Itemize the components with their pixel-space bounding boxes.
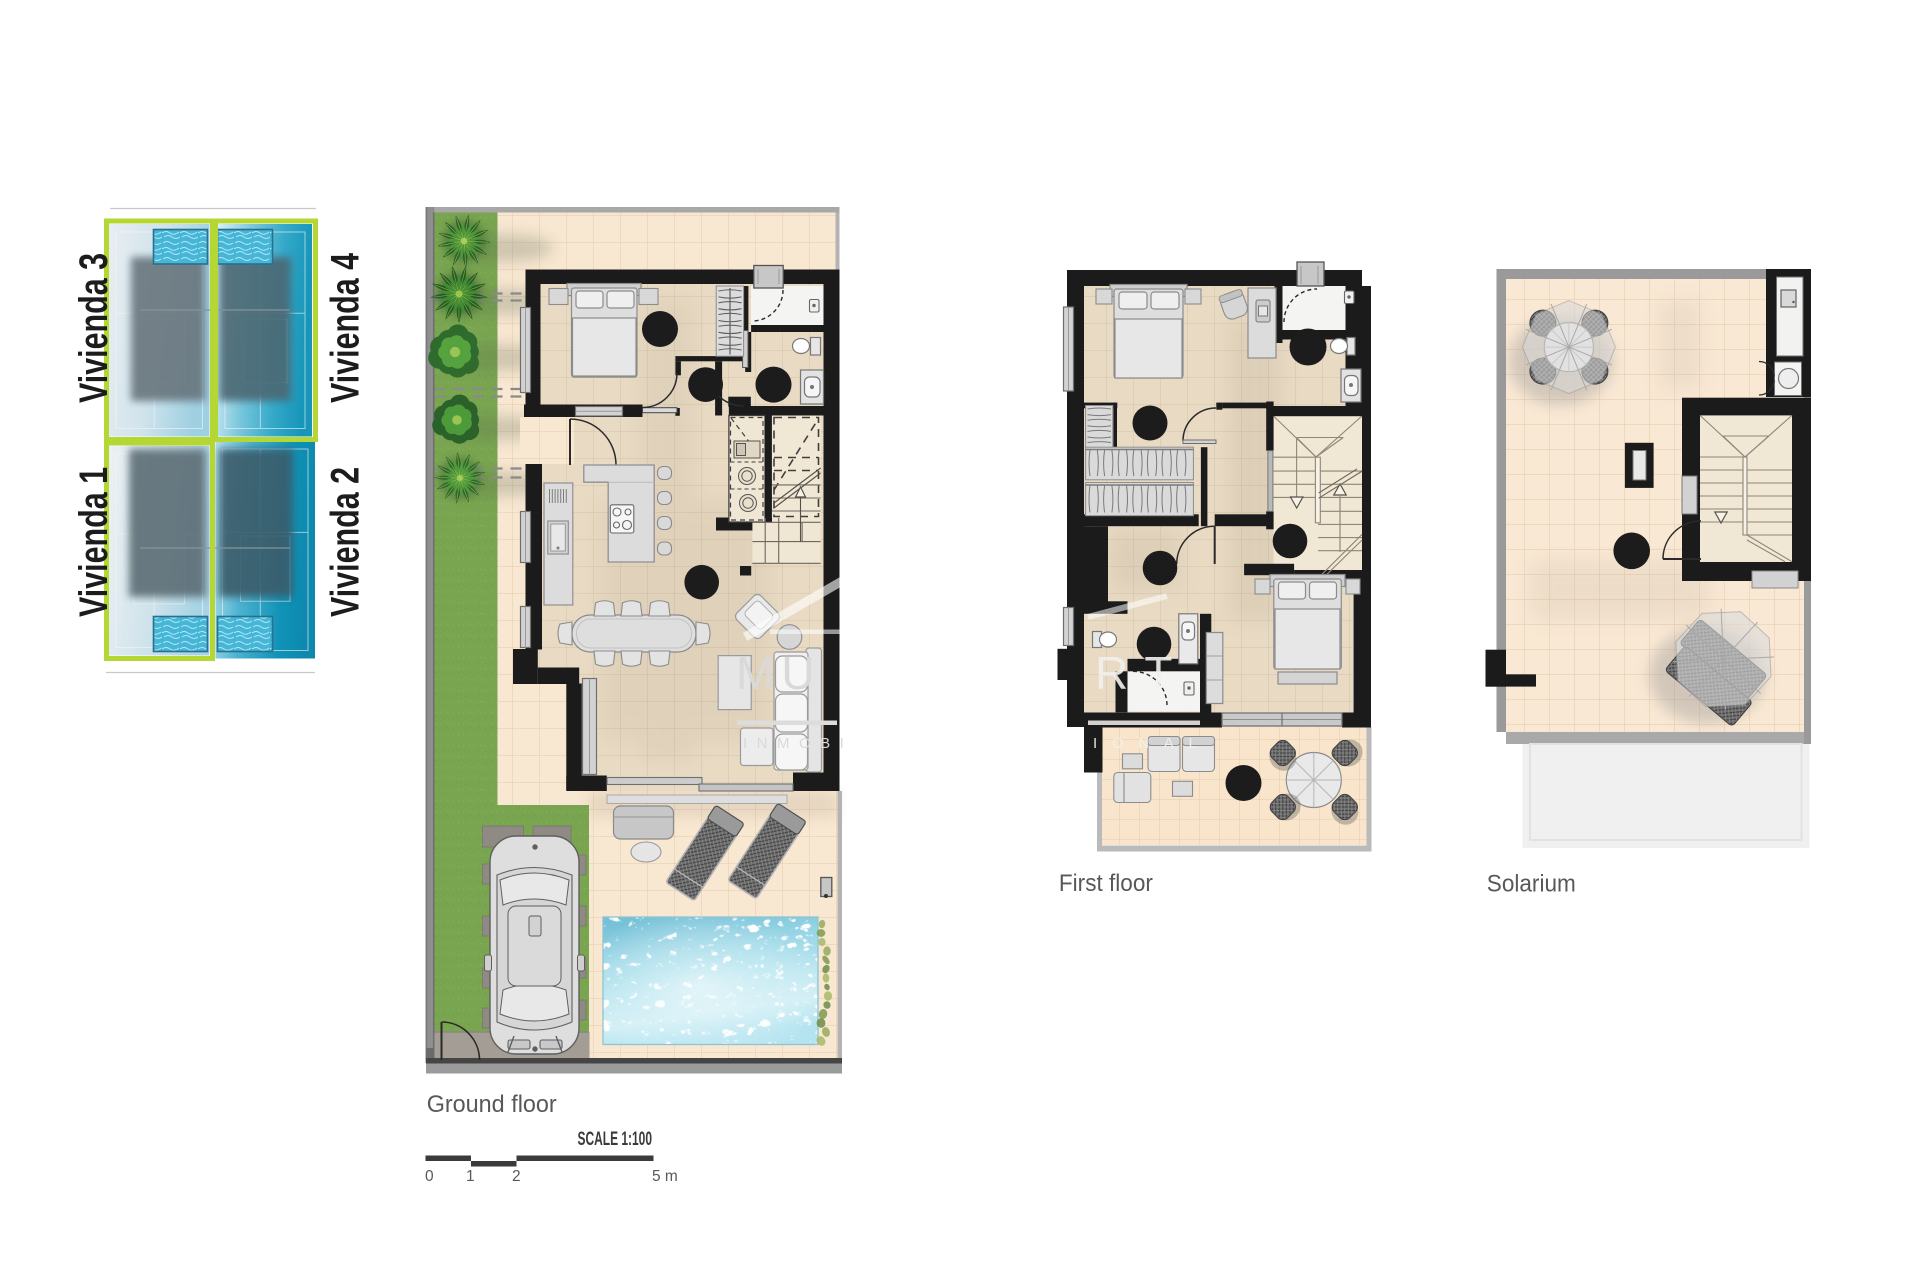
svg-text:2: 2 xyxy=(512,1168,521,1185)
svg-text:Vivienda 3: Vivienda 3 xyxy=(72,253,116,403)
svg-text:Vivienda 4: Vivienda 4 xyxy=(324,252,368,403)
svg-text:INMOBI: INMOBI xyxy=(743,735,853,752)
svg-text:Vivienda 2: Vivienda 2 xyxy=(324,467,368,617)
svg-text:MU: MU xyxy=(736,647,822,699)
svg-text:Ground floor: Ground floor xyxy=(427,1091,557,1118)
svg-text:First floor: First floor xyxy=(1059,870,1153,897)
svg-text:5 m: 5 m xyxy=(652,1168,678,1185)
svg-text:0: 0 xyxy=(425,1168,434,1185)
svg-text:SCALE 1:100: SCALE 1:100 xyxy=(578,1129,653,1150)
svg-text:1: 1 xyxy=(466,1168,475,1185)
svg-text:IONAL: IONAL xyxy=(1093,735,1212,752)
svg-text:Solarium: Solarium xyxy=(1487,871,1576,898)
svg-text:RT: RT xyxy=(1095,647,1190,699)
svg-text:Vivienda 1: Vivienda 1 xyxy=(72,467,116,617)
